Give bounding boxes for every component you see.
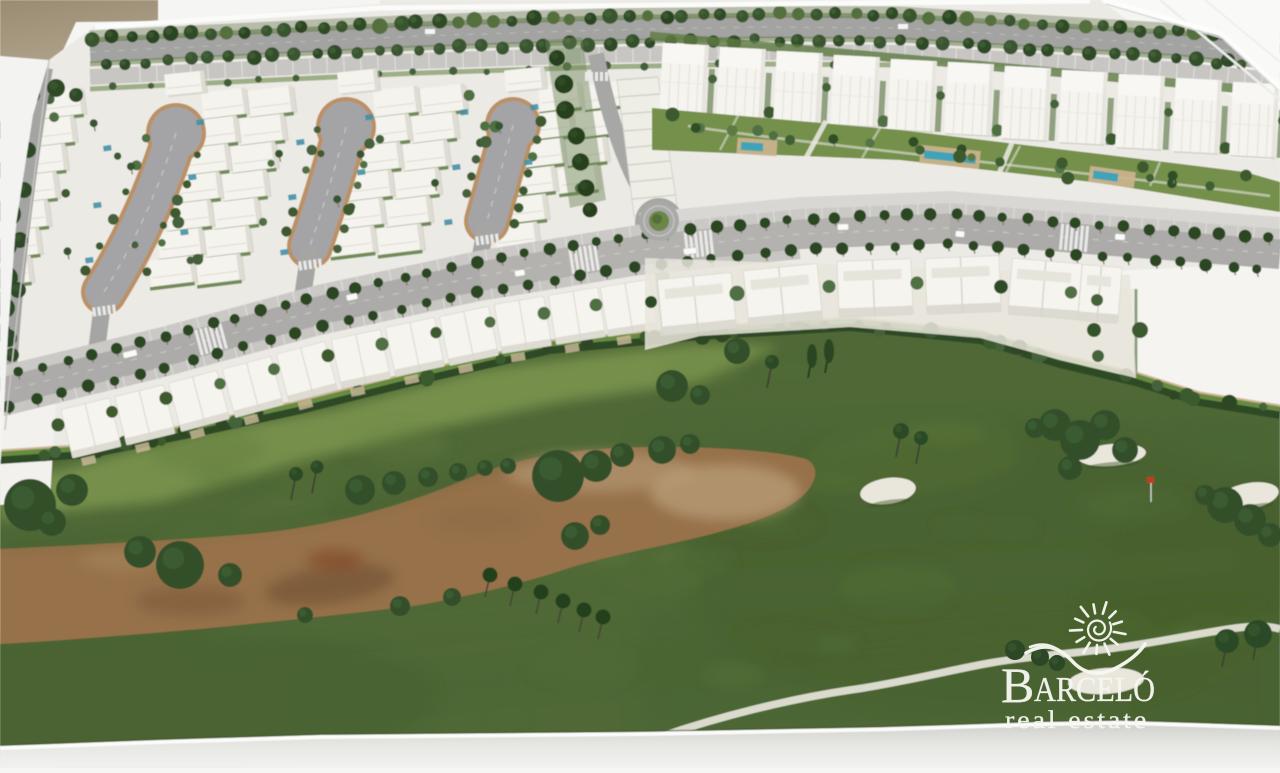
svg-text:real estate: real estate (1005, 707, 1149, 734)
svg-text:B: B (1001, 657, 1034, 713)
svg-text:ARCELÓ: ARCELÓ (1034, 669, 1155, 709)
